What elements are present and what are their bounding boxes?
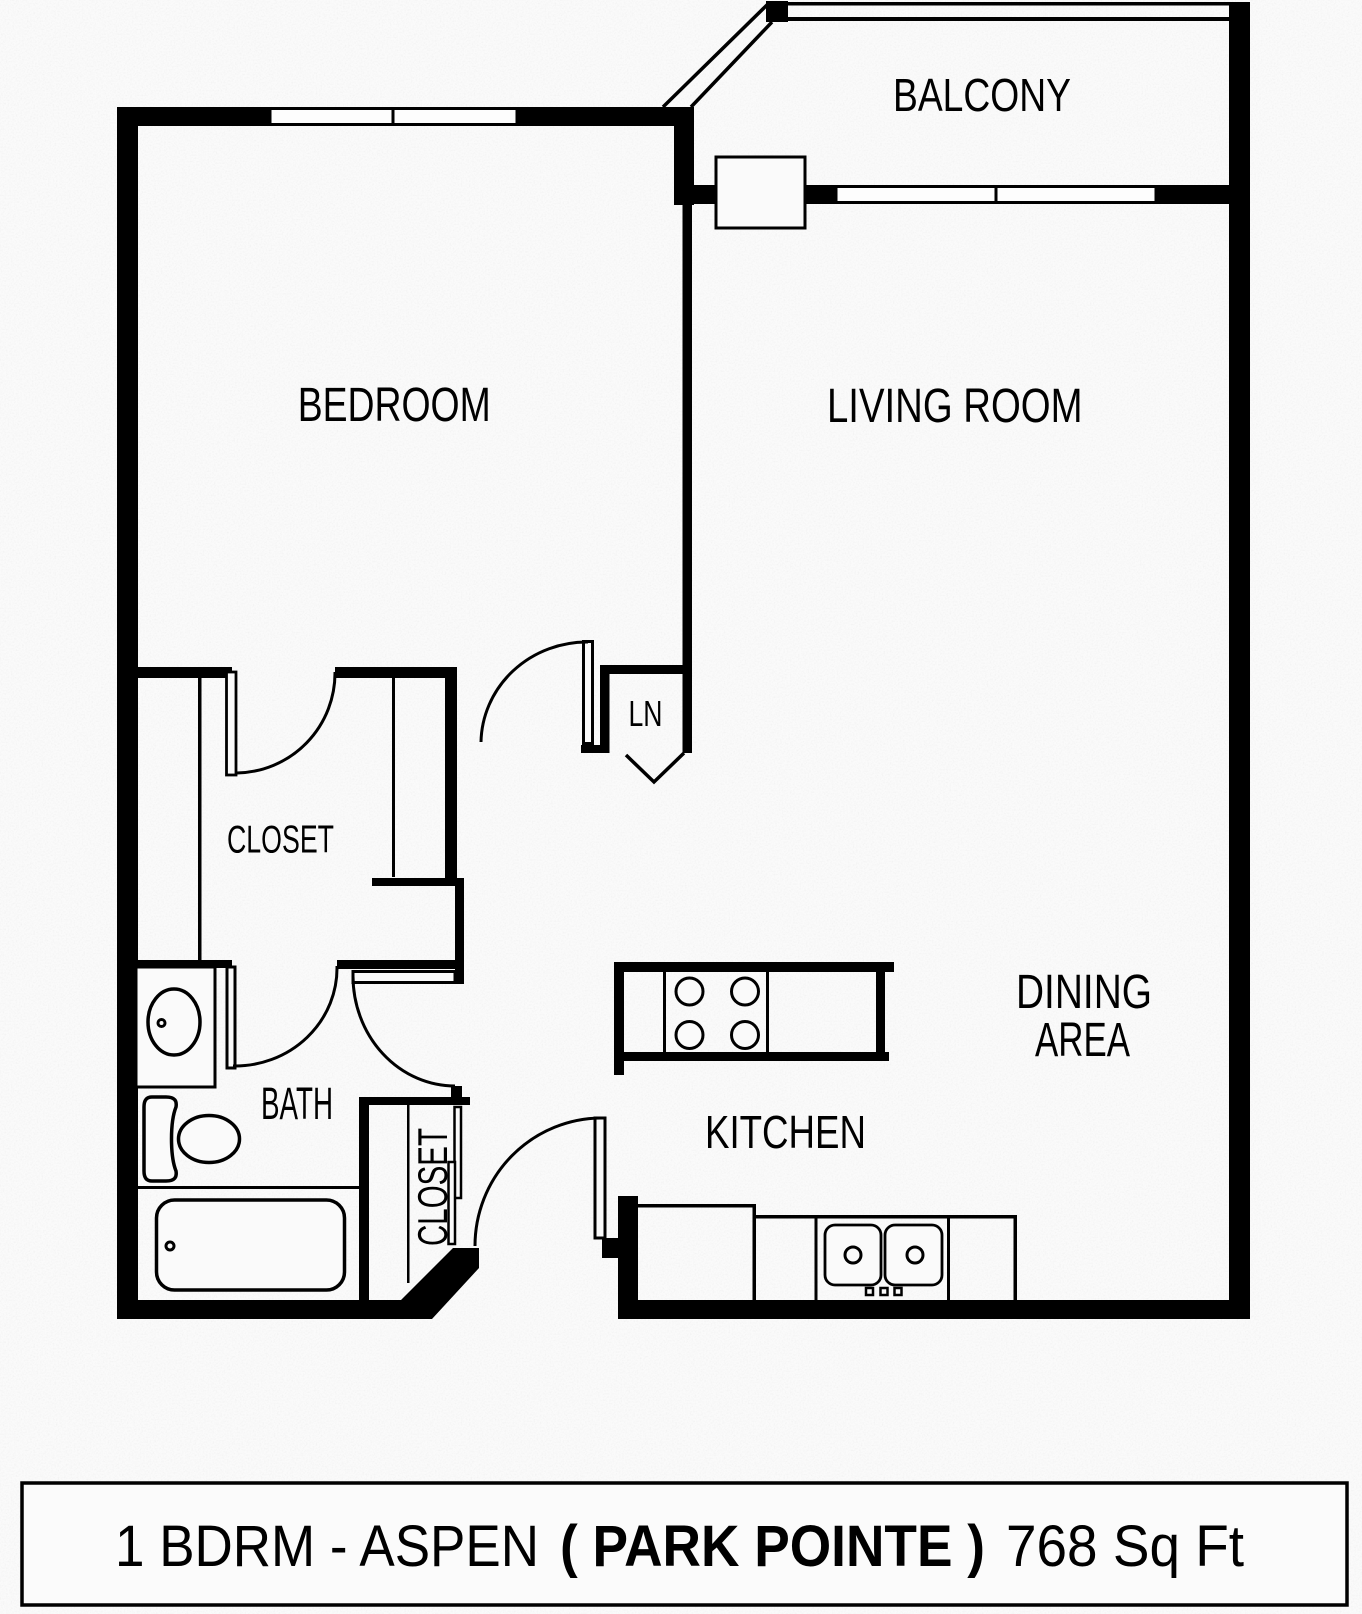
svg-text:CLOSET: CLOSET — [409, 1128, 456, 1246]
svg-text:KITCHEN: KITCHEN — [705, 1106, 866, 1158]
svg-text:1 BDRM - ASPEN: 1 BDRM - ASPEN — [115, 1514, 539, 1579]
svg-text:768 Sq Ft: 768 Sq Ft — [1006, 1514, 1244, 1579]
svg-text:AREA: AREA — [1035, 1014, 1130, 1067]
svg-text:DINING: DINING — [1016, 966, 1152, 1019]
svg-text:BATH: BATH — [261, 1078, 333, 1129]
svg-text:LIVING ROOM: LIVING ROOM — [827, 380, 1083, 433]
svg-text:( PARK POINTE ): ( PARK POINTE ) — [560, 1514, 985, 1579]
svg-text:CLOSET: CLOSET — [227, 819, 334, 862]
svg-text:BEDROOM: BEDROOM — [298, 379, 491, 432]
svg-text:BALCONY: BALCONY — [893, 69, 1071, 121]
svg-text:LN: LN — [629, 693, 663, 734]
